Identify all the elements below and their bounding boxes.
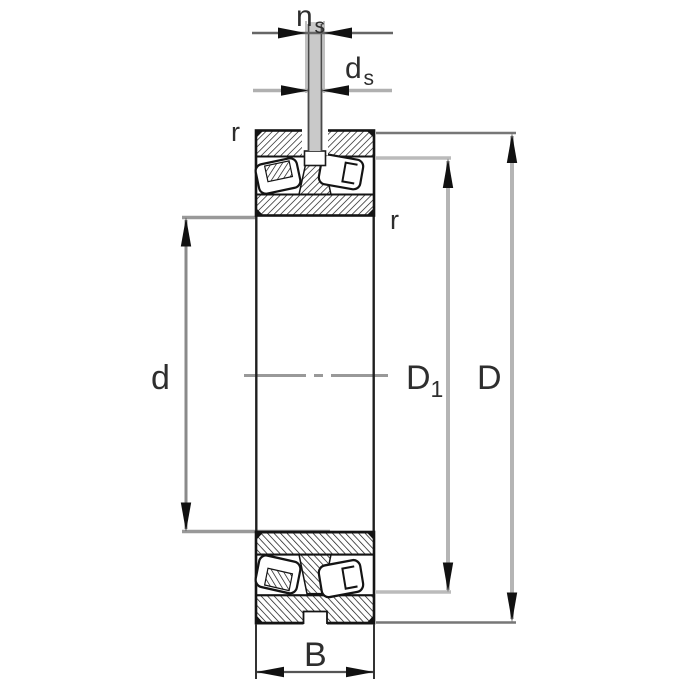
arrow-ns-right — [324, 28, 352, 39]
label-ns: n — [296, 0, 313, 33]
label-ds-sub: s — [364, 67, 375, 90]
bearing-cross-section-diagram: n s d s r r d D 1 D B — [0, 0, 680, 680]
od-groove-notch — [304, 612, 328, 626]
bearing-bottom-half-section — [254, 532, 374, 625]
arrow-D1-bottom — [443, 563, 453, 593]
arrow-B-left — [256, 667, 284, 677]
lubrication-groove — [305, 151, 326, 166]
label-D: D — [477, 359, 502, 397]
arrow-B-right — [346, 667, 374, 677]
label-D1: D — [406, 359, 431, 397]
arrow-d-bottom — [181, 503, 191, 532]
label-D1-sub: 1 — [431, 376, 444, 402]
label-B: B — [304, 636, 327, 674]
arrow-ds-left — [281, 85, 309, 95]
arrow-D-top — [507, 134, 517, 164]
label-r-top: r — [231, 117, 240, 147]
bearing-drawing-canvas: n s d s r r d D 1 D B — [0, 0, 680, 680]
label-ds: d — [345, 52, 362, 85]
label-r-inner: r — [390, 205, 399, 235]
lubrication-pin — [309, 22, 322, 151]
arrow-D-bottom — [507, 593, 517, 623]
label-ns-sub: s — [315, 15, 326, 38]
arrow-ds-right — [322, 85, 350, 95]
label-d: d — [151, 359, 170, 397]
arrow-d-top — [181, 218, 191, 247]
arrow-D1-top — [443, 159, 453, 189]
